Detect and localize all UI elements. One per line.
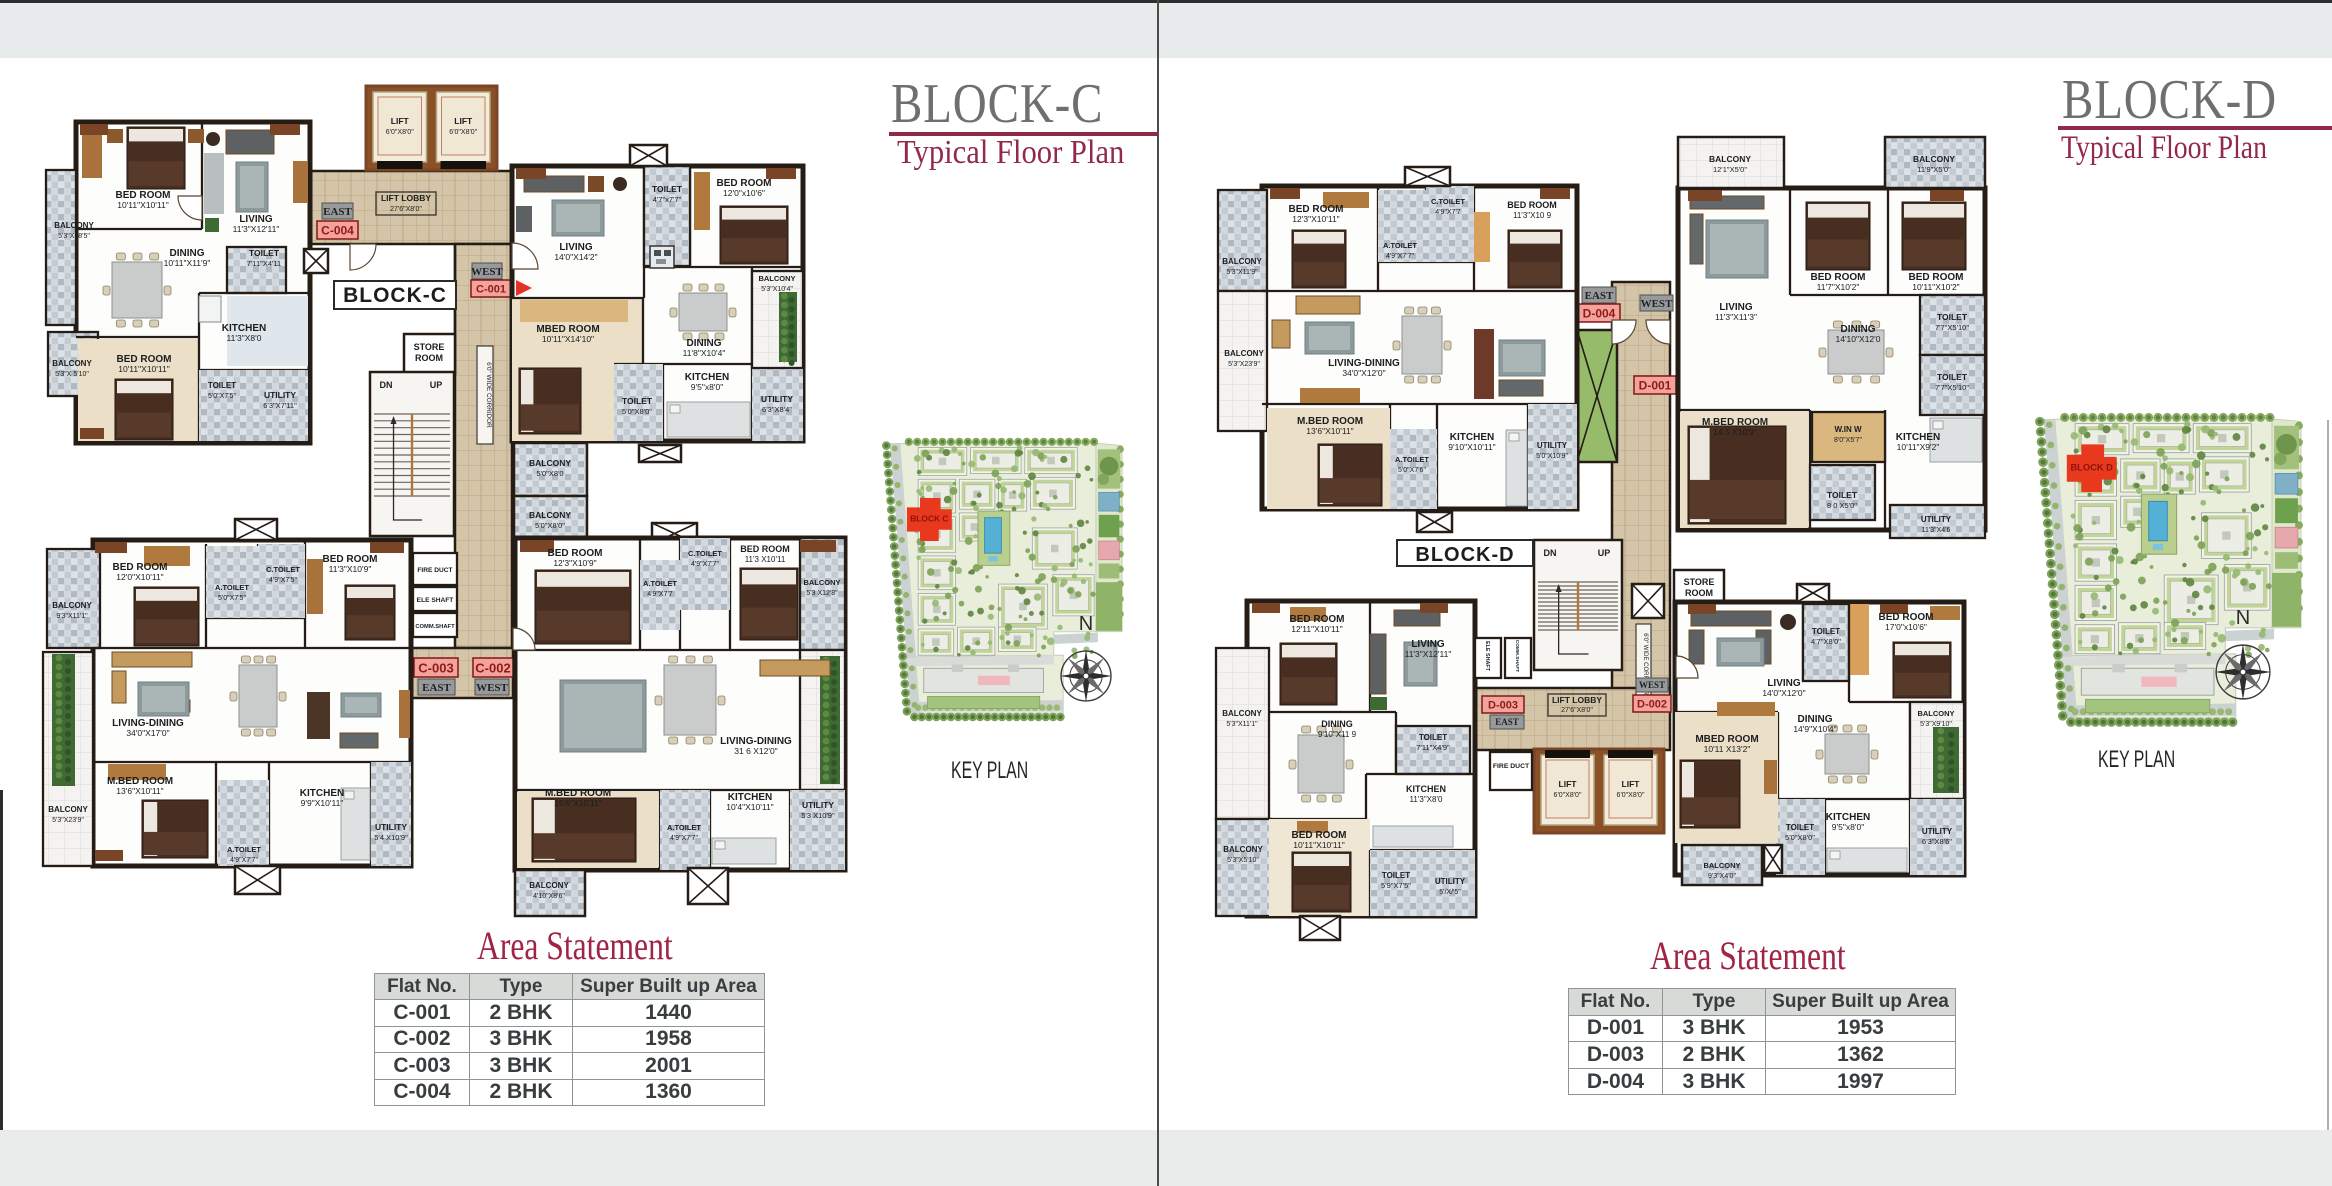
svg-text:6'0"X8'0": 6'0"X8'0" <box>1554 792 1582 799</box>
svg-text:4'9"X7'5": 4'9"X7'5" <box>269 577 297 584</box>
svg-text:TOILET: TOILET <box>622 396 653 406</box>
svg-text:UTILITY: UTILITY <box>802 800 834 810</box>
svg-text:A.TOILET: A.TOILET <box>227 845 261 854</box>
svg-text:FIRE DUCT: FIRE DUCT <box>417 567 452 574</box>
svg-text:10'11"X11'9": 10'11"X11'9" <box>164 258 211 268</box>
svg-text:14'9"X10'4": 14'9"X10'4" <box>1793 724 1836 734</box>
svg-text:D-004: D-004 <box>1583 307 1616 321</box>
svg-text:5'0"X7'5": 5'0"X7'5" <box>218 595 246 602</box>
svg-text:C-002: C-002 <box>475 661 510 676</box>
svg-text:BALCONY: BALCONY <box>1913 154 1955 164</box>
svg-text:6'0"X8'0": 6'0"X8'0" <box>1617 792 1645 799</box>
svg-text:BALCONY: BALCONY <box>1222 257 1262 266</box>
svg-text:UTILITY: UTILITY <box>264 390 296 400</box>
svg-text:TOILET: TOILET <box>1937 312 1968 322</box>
svg-text:10'11"X9'2": 10'11"X9'2" <box>1897 442 1940 452</box>
svg-text:TOILET: TOILET <box>652 184 683 194</box>
svg-text:5'0"X8'0": 5'0"X8'0" <box>535 521 565 530</box>
svg-text:5'3"X23'9": 5'3"X23'9" <box>1228 361 1260 368</box>
svg-text:DN: DN <box>1544 548 1557 558</box>
svg-text:34'0"X17'0": 34'0"X17'0" <box>126 728 169 738</box>
svg-text:4'9"X7'7": 4'9"X7'7" <box>230 857 258 864</box>
svg-text:EAST: EAST <box>422 682 451 694</box>
svg-text:12'1"X5'0": 12'1"X5'0" <box>1713 165 1747 174</box>
svg-text:5'0"X8'0": 5'0"X8'0" <box>1785 833 1815 842</box>
svg-text:TOILET: TOILET <box>1419 733 1447 742</box>
svg-text:ROOM: ROOM <box>415 353 443 363</box>
svg-text:5'3"X9'10": 5'3"X9'10" <box>1920 721 1952 728</box>
svg-text:17'0"x10'6": 17'0"x10'6" <box>1885 622 1927 632</box>
svg-text:D-002: D-002 <box>1637 699 1667 711</box>
svg-text:BALCONY: BALCONY <box>54 221 94 230</box>
svg-text:ELE SHAFT: ELE SHAFT <box>1484 641 1490 672</box>
svg-text:EAST: EAST <box>323 206 352 218</box>
svg-text:6'3"X8'4": 6'3"X8'4" <box>762 405 792 414</box>
svg-text:WEST: WEST <box>476 682 508 694</box>
svg-text:BALCONY: BALCONY <box>48 805 88 814</box>
svg-text:A.TOILET: A.TOILET <box>643 579 677 588</box>
svg-text:5'3"X 5'10": 5'3"X 5'10" <box>55 371 89 378</box>
svg-text:11'8"X10'4": 11'8"X10'4" <box>683 348 726 358</box>
svg-text:10'4"X10'11": 10'4"X10'11" <box>726 802 773 812</box>
svg-text:UP: UP <box>1598 548 1611 558</box>
svg-text:C.TOILET: C.TOILET <box>266 565 300 574</box>
svg-text:11'3"X4'6: 11'3"X4'6 <box>1922 527 1951 534</box>
svg-text:6'3"X7'11": 6'3"X7'11" <box>263 401 297 410</box>
svg-text:A.TOILET: A.TOILET <box>1395 455 1429 464</box>
svg-text:11'9"X5'0": 11'9"X5'0" <box>1917 165 1951 174</box>
svg-text:UTILITY: UTILITY <box>1537 441 1568 450</box>
svg-text:4'9"X7'7": 4'9"X7'7" <box>691 561 719 568</box>
svg-text:TOILET: TOILET <box>1382 871 1410 880</box>
svg-text:W.IN W: W.IN W <box>1834 425 1862 434</box>
svg-text:FIRE DUCT: FIRE DUCT <box>1493 763 1530 770</box>
svg-text:BED ROOM: BED ROOM <box>740 544 790 554</box>
svg-text:A.TOILET: A.TOILET <box>215 583 249 592</box>
svg-text:DINING: DINING <box>1321 719 1353 729</box>
svg-text:BALCONY: BALCONY <box>1224 349 1264 358</box>
svg-text:6'0"X8'0": 6'0"X8'0" <box>449 129 477 136</box>
svg-text:5'4 X10'9": 5'4 X10'9" <box>374 833 408 842</box>
svg-text:9'9"X10'11": 9'9"X10'11" <box>301 798 344 808</box>
svg-text:TOILET: TOILET <box>249 248 280 258</box>
svg-text:TOILET: TOILET <box>1827 490 1858 500</box>
svg-text:5'3 X10'9": 5'3 X10'9" <box>801 811 835 820</box>
svg-text:WEST: WEST <box>471 266 503 278</box>
svg-text:14'10"X12'0: 14'10"X12'0 <box>1835 334 1880 344</box>
svg-text:12'3"X10'11": 12'3"X10'11" <box>1292 214 1339 224</box>
svg-text:STORE: STORE <box>414 342 445 352</box>
svg-text:BLOCK-C: BLOCK-C <box>343 284 447 307</box>
svg-text:11'3 X10'11: 11'3 X10'11 <box>745 555 786 564</box>
svg-text:10'11"X10'2": 10'11"X10'2" <box>1912 282 1959 292</box>
svg-text:12'11"X10'11": 12'11"X10'11" <box>1291 624 1343 634</box>
svg-text:COMM.SHAFT: COMM.SHAFT <box>1514 640 1520 673</box>
svg-text:27'6"X8'0": 27'6"X8'0" <box>1561 707 1593 714</box>
svg-text:27'6"X8'0": 27'6"X8'0" <box>390 206 422 213</box>
svg-text:14'0"X14'2": 14'0"X14'2" <box>554 252 597 262</box>
svg-text:UTILITY: UTILITY <box>375 822 407 832</box>
svg-text:5'0"X7'6": 5'0"X7'6" <box>1398 467 1426 474</box>
svg-text:11'7"X10'2": 11'7"X10'2" <box>1817 282 1860 292</box>
svg-text:UTILITY: UTILITY <box>1922 827 1953 836</box>
svg-text:4'9"X7'7: 4'9"X7'7 <box>1435 209 1461 216</box>
svg-text:C-001: C-001 <box>476 284 506 296</box>
svg-text:5'3"X18'5": 5'3"X18'5" <box>58 233 90 240</box>
svg-text:BALCONY: BALCONY <box>529 458 571 468</box>
svg-text:BALCONY: BALCONY <box>758 274 795 283</box>
svg-text:11'3"X8'0: 11'3"X8'0 <box>1410 795 1443 804</box>
svg-text:12'3"X10'9": 12'3"X10'9" <box>553 558 596 568</box>
svg-text:BLOCK-D: BLOCK-D <box>1415 544 1514 566</box>
svg-text:7'7"X5'10": 7'7"X5'10" <box>1935 383 1969 392</box>
svg-text:A.TOILET: A.TOILET <box>1383 241 1417 250</box>
svg-text:10'11"X10'11": 10'11"X10'11" <box>118 364 170 374</box>
svg-text:5'0"X10'9": 5'0"X10'9" <box>1536 453 1568 460</box>
svg-text:TOILET: TOILET <box>1937 372 1968 382</box>
svg-text:9'3"X11'1": 9'3"X11'1" <box>56 613 88 620</box>
svg-text:BALCONY: BALCONY <box>1703 861 1740 870</box>
svg-text:6'0" WIDE CORRIDOR: 6'0" WIDE CORRIDOR <box>485 362 492 428</box>
svg-text:14 5 X10'9": 14 5 X10'9" <box>1713 427 1756 437</box>
svg-text:A.TOILET: A.TOILET <box>667 823 701 832</box>
svg-text:10'11 X13'2": 10'11 X13'2" <box>1704 744 1751 754</box>
svg-text:9'3"X4'0": 9'3"X4'0" <box>1708 873 1736 880</box>
svg-text:5'9"X7'5": 5'9"X7'5" <box>1381 881 1411 890</box>
svg-text:14'0"X12'0": 14'0"X12'0" <box>1762 688 1805 698</box>
svg-text:BED ROOM: BED ROOM <box>1507 200 1557 210</box>
svg-text:4'7"x7'7": 4'7"x7'7" <box>653 195 682 204</box>
svg-text:9'5"x8'0": 9'5"x8'0" <box>691 382 723 392</box>
svg-text:C-003: C-003 <box>418 661 453 676</box>
svg-text:9'10"X10'11": 9'10"X10'11" <box>1448 442 1495 452</box>
svg-text:LIFT: LIFT <box>1622 779 1641 789</box>
svg-text:13'6"X10'11": 13'6"X10'11" <box>1306 426 1353 436</box>
svg-text:TOILET: TOILET <box>1812 627 1840 636</box>
svg-text:BALCONY: BALCONY <box>52 601 92 610</box>
svg-text:D-003: D-003 <box>1488 700 1518 712</box>
svg-text:8 0 X5'0": 8 0 X5'0" <box>1827 501 1857 510</box>
svg-text:LIFT: LIFT <box>391 116 410 126</box>
svg-text:4'9"X7'7": 4'9"X7'7" <box>670 835 698 842</box>
svg-text:6'0"X8'0": 6'0"X8'0" <box>386 129 414 136</box>
svg-text:4'10"X8'6": 4'10"X8'6" <box>533 893 565 900</box>
svg-text:5'3"X10'4": 5'3"X10'4" <box>761 286 793 293</box>
svg-text:5'3"X11'9": 5'3"X11'9" <box>1226 269 1258 276</box>
svg-text:LIFT LOBBY: LIFT LOBBY <box>381 193 431 203</box>
svg-text:BALCONY: BALCONY <box>1223 845 1263 854</box>
svg-text:7'11"X4'11: 7'11"X4'11 <box>247 259 281 268</box>
svg-text:9'10"X11 9: 9'10"X11 9 <box>1318 730 1357 739</box>
svg-text:BALCONY: BALCONY <box>529 510 571 520</box>
svg-text:4'7"X8'0": 4'7"X8'0" <box>1811 637 1841 646</box>
svg-text:11'3"X11'3": 11'3"X11'3" <box>1715 312 1757 322</box>
svg-text:WEST: WEST <box>1641 298 1673 310</box>
svg-text:5'3"X5'10": 5'3"X5'10" <box>1227 857 1259 864</box>
svg-text:ELE SHAFT: ELE SHAFT <box>417 597 454 604</box>
svg-text:LIFT: LIFT <box>454 116 473 126</box>
svg-text:BALCONY: BALCONY <box>1709 154 1751 164</box>
svg-text:WEST: WEST <box>1639 680 1665 690</box>
svg-text:STORE: STORE <box>1684 577 1715 587</box>
svg-text:11'3"X12'11": 11'3"X12'11" <box>233 224 280 234</box>
svg-text:31 6 X12'0": 31 6 X12'0" <box>734 746 777 756</box>
svg-text:C.TOILET: C.TOILET <box>688 549 722 558</box>
svg-text:7'7"X5'10": 7'7"X5'10" <box>1935 323 1969 332</box>
svg-text:8'0"X5'7": 8'0"X5'7" <box>1834 437 1862 444</box>
svg-text:5'/X/'5": 5'/X/'5" <box>1439 889 1461 896</box>
svg-text:UTILITY: UTILITY <box>1921 515 1952 524</box>
svg-text:5'3"X11'1": 5'3"X11'1" <box>1226 721 1258 728</box>
svg-text:15'6"X10'11": 15'6"X10'11" <box>554 798 601 808</box>
svg-text:4'9"X7'7": 4'9"X7'7" <box>1386 253 1414 260</box>
svg-text:13'6"X10'11": 13'6"X10'11" <box>116 786 163 796</box>
svg-text:11'3"X10 9: 11'3"X10 9 <box>1513 211 1552 220</box>
svg-text:C-004: C-004 <box>321 224 354 238</box>
svg-text:10'11"X14'10": 10'11"X14'10" <box>542 334 594 344</box>
svg-text:D-001: D-001 <box>1639 379 1672 393</box>
svg-text:LIFT: LIFT <box>1559 779 1578 789</box>
svg-text:BALCONY: BALCONY <box>529 881 569 890</box>
svg-text:5'0"X7'5": 5'0"X7'5" <box>208 393 236 400</box>
svg-text:LIFT LOBBY: LIFT LOBBY <box>1552 695 1602 705</box>
svg-text:ROOM: ROOM <box>1685 588 1713 598</box>
svg-text:BALCONY: BALCONY <box>52 359 92 368</box>
svg-text:KITCHEN: KITCHEN <box>1406 784 1446 794</box>
svg-text:6'3"X8'6": 6'3"X8'6" <box>1922 837 1952 846</box>
svg-text:11'3"X10'9": 11'3"X10'9" <box>329 564 372 574</box>
svg-text:5'3"X23'9": 5'3"X23'9" <box>52 817 84 824</box>
svg-text:UTILITY: UTILITY <box>761 394 793 404</box>
svg-text:BALCONY: BALCONY <box>1917 709 1954 718</box>
svg-text:UP: UP <box>430 380 443 390</box>
svg-text:DN: DN <box>380 380 393 390</box>
svg-text:5'0"X8'0: 5'0"X8'0 <box>536 469 563 478</box>
svg-text:COMM.SHAFT: COMM.SHAFT <box>415 624 455 630</box>
svg-text:12'0"x10'6": 12'0"x10'6" <box>723 188 765 198</box>
svg-text:11'3"X8'0: 11'3"X8'0 <box>227 333 262 343</box>
svg-text:UTILITY: UTILITY <box>1435 877 1466 886</box>
svg-text:4'9"X7'7: 4'9"X7'7 <box>647 591 673 598</box>
svg-text:C.TOILET: C.TOILET <box>1431 197 1465 206</box>
svg-text:BALCONY: BALCONY <box>803 578 840 587</box>
svg-text:11'3"X12'11": 11'3"X12'11" <box>1405 649 1452 659</box>
svg-text:EAST: EAST <box>1585 290 1614 302</box>
svg-text:10'11"X10'11": 10'11"X10'11" <box>117 200 169 210</box>
svg-text:TOILET: TOILET <box>208 381 236 390</box>
svg-text:34'0"X12'0": 34'0"X12'0" <box>1342 368 1385 378</box>
svg-text:TOILET: TOILET <box>1786 823 1814 832</box>
svg-text:5'0"X8'0": 5'0"X8'0" <box>622 407 652 416</box>
svg-text:BALCONY: BALCONY <box>1222 709 1262 718</box>
svg-text:10'11"X10'11": 10'11"X10'11" <box>1293 840 1345 850</box>
svg-text:EAST: EAST <box>1495 717 1519 727</box>
svg-text:5'3 X12'8": 5'3 X12'8" <box>806 590 838 597</box>
svg-text:7'11"X4'9": 7'11"X4'9" <box>1416 743 1450 752</box>
svg-text:9'5"x8'0": 9'5"x8'0" <box>1832 822 1864 832</box>
svg-text:12'0"X10'11": 12'0"X10'11" <box>116 572 163 582</box>
